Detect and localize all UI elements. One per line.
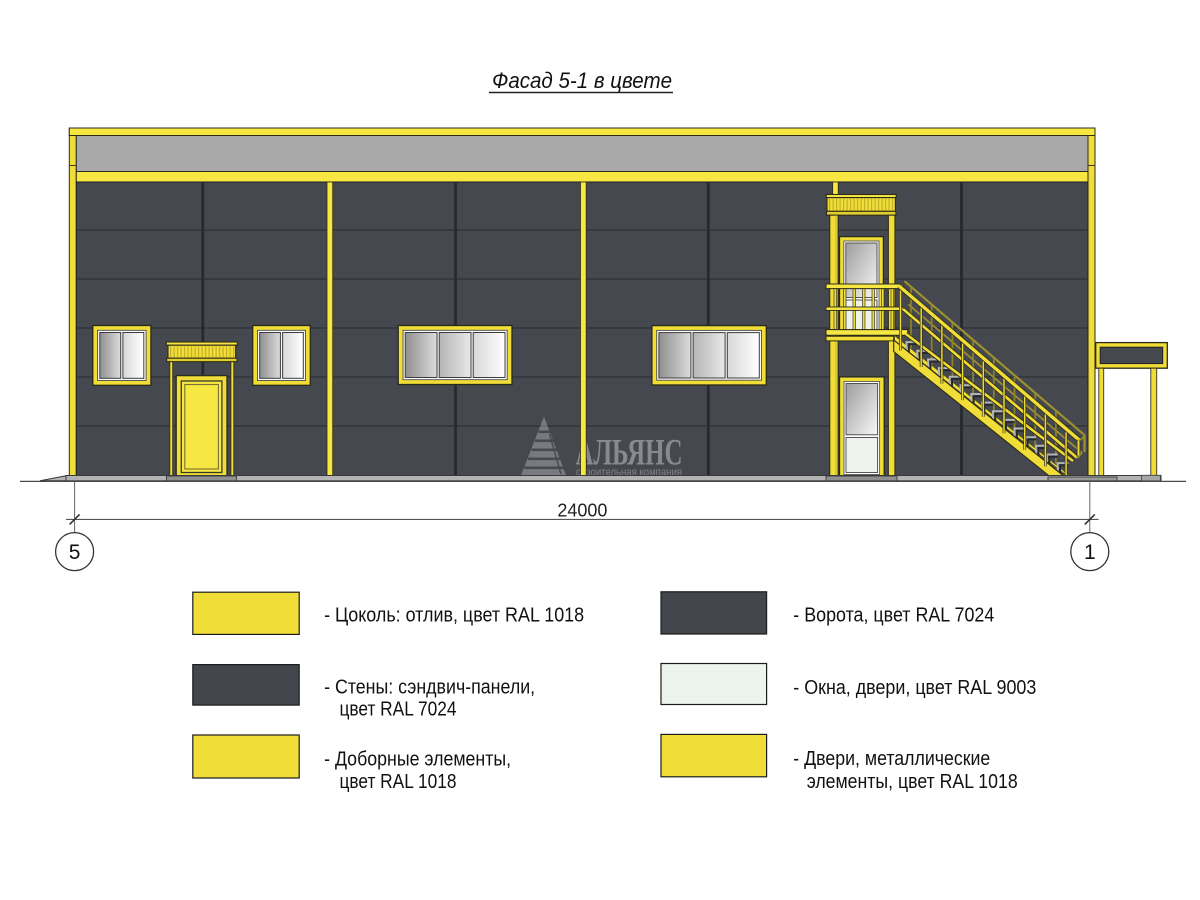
svg-text:- Окна, двери, цвет RAL 9003: - Окна, двери, цвет RAL 9003	[793, 677, 1036, 699]
svg-text:цвет RAL 7024: цвет RAL 7024	[340, 699, 457, 721]
svg-text:- Цоколь: отлив, цвет RAL 1018: - Цоколь: отлив, цвет RAL 1018	[324, 605, 584, 627]
svg-text:- Двери, металлические: - Двери, металлические	[793, 748, 990, 770]
svg-text:5: 5	[69, 541, 81, 564]
svg-text:элементы, цвет RAL 1018: элементы, цвет RAL 1018	[807, 771, 1018, 793]
svg-text:цвет RAL 1018: цвет RAL 1018	[340, 771, 457, 793]
svg-text:- Стены: сэндвич-панели,: - Стены: сэндвич-панели,	[324, 677, 535, 699]
svg-text:- Ворота, цвет RAL 7024: - Ворота, цвет RAL 7024	[793, 605, 994, 627]
svg-text:- Доборные элементы,: - Доборные элементы,	[324, 749, 511, 771]
svg-text:1: 1	[1084, 541, 1096, 564]
svg-text:Фасад 5-1 в цвете: Фасад 5-1 в цвете	[492, 68, 672, 93]
svg-text:24000: 24000	[557, 501, 607, 521]
